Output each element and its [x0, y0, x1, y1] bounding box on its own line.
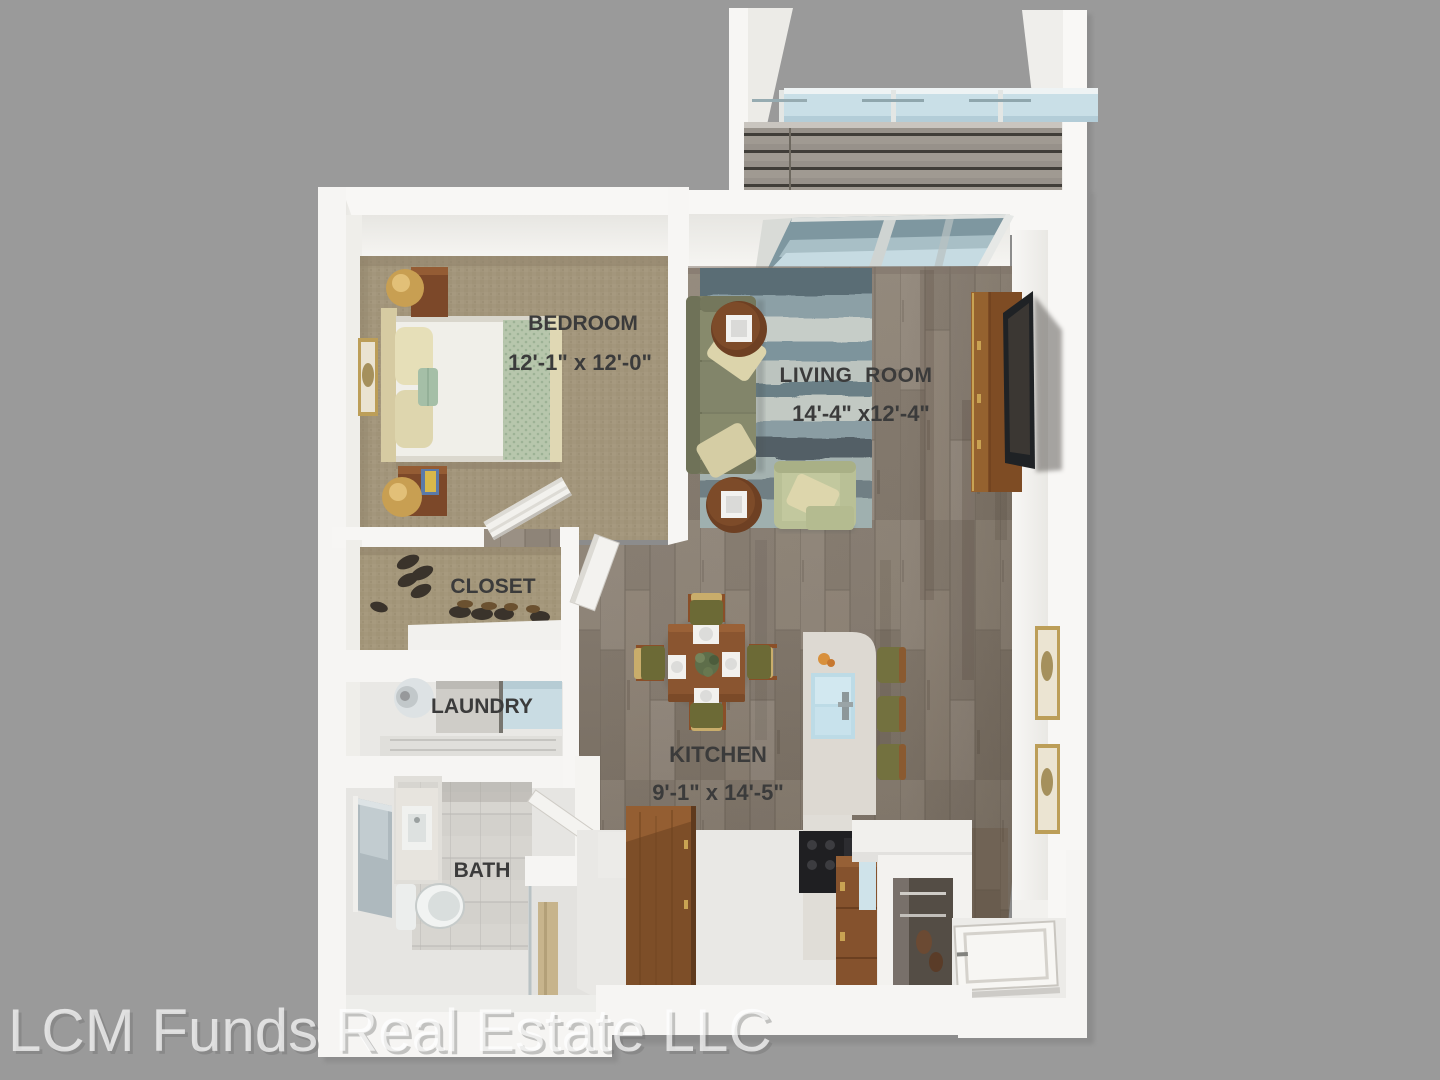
svg-text:LIVING ROOM: LIVING ROOM	[780, 364, 933, 387]
svg-text:9'-1" x 14'-5": 9'-1" x 14'-5"	[652, 780, 784, 805]
svg-text:CLOSET: CLOSET	[450, 575, 535, 598]
svg-text:LAUNDRY: LAUNDRY	[431, 695, 533, 718]
svg-text:BEDROOM: BEDROOM	[528, 312, 638, 335]
svg-text:12'-1" x 12'-0": 12'-1" x 12'-0"	[508, 350, 652, 375]
svg-text:14'-4" x12'-4": 14'-4" x12'-4"	[792, 401, 930, 426]
svg-text:LCM Funds Real Estate LLC: LCM Funds Real Estate LLC	[8, 997, 772, 1064]
svg-text:KITCHEN: KITCHEN	[669, 742, 767, 767]
svg-text:BATH: BATH	[454, 859, 511, 882]
